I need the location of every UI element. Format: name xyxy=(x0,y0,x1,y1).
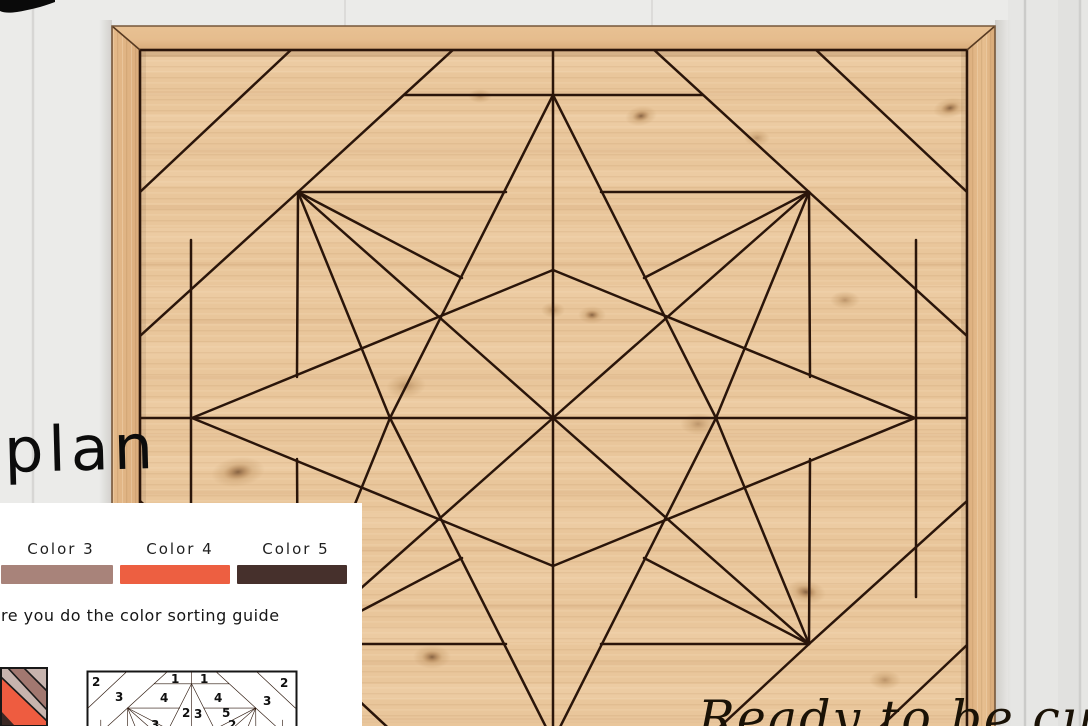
diagram-number: 4 xyxy=(214,692,222,704)
diagram-number: 3 xyxy=(194,708,202,720)
diagram-number: 2 xyxy=(280,677,288,689)
diagram-number: 2 xyxy=(228,719,236,726)
diagram-number: 2 xyxy=(182,707,190,719)
diagram-number: 1 xyxy=(171,673,179,685)
color5-swatch xyxy=(237,565,347,584)
diagram-number: 2 xyxy=(92,676,100,688)
diagram-number: 4 xyxy=(160,692,168,704)
scene: plan Ready to be cut Color 3 Color 4 Col… xyxy=(0,0,1088,726)
frame-top xyxy=(112,26,995,50)
color4-label: Color 4 xyxy=(120,540,240,558)
color3-label: Color 3 xyxy=(1,540,121,558)
wall-groove-band xyxy=(1058,0,1080,726)
diagram-number: 1 xyxy=(200,673,208,685)
diagram-number: 3 xyxy=(263,695,271,707)
frame-shadow-right xyxy=(995,20,1011,726)
frame-right-grain xyxy=(967,26,995,726)
mini-painted-block xyxy=(1,668,47,726)
color5-label: Color 5 xyxy=(236,540,356,558)
ready-to-cut-label: Ready to be cut xyxy=(698,690,1088,726)
color4-swatch xyxy=(120,565,230,584)
guide-caption: re you do the color sorting guide xyxy=(1,606,280,625)
color3-swatch xyxy=(1,565,113,584)
diagram-number: 3 xyxy=(115,691,123,703)
diagram-number: 3 xyxy=(151,719,159,726)
plan-label: plan xyxy=(3,410,159,487)
